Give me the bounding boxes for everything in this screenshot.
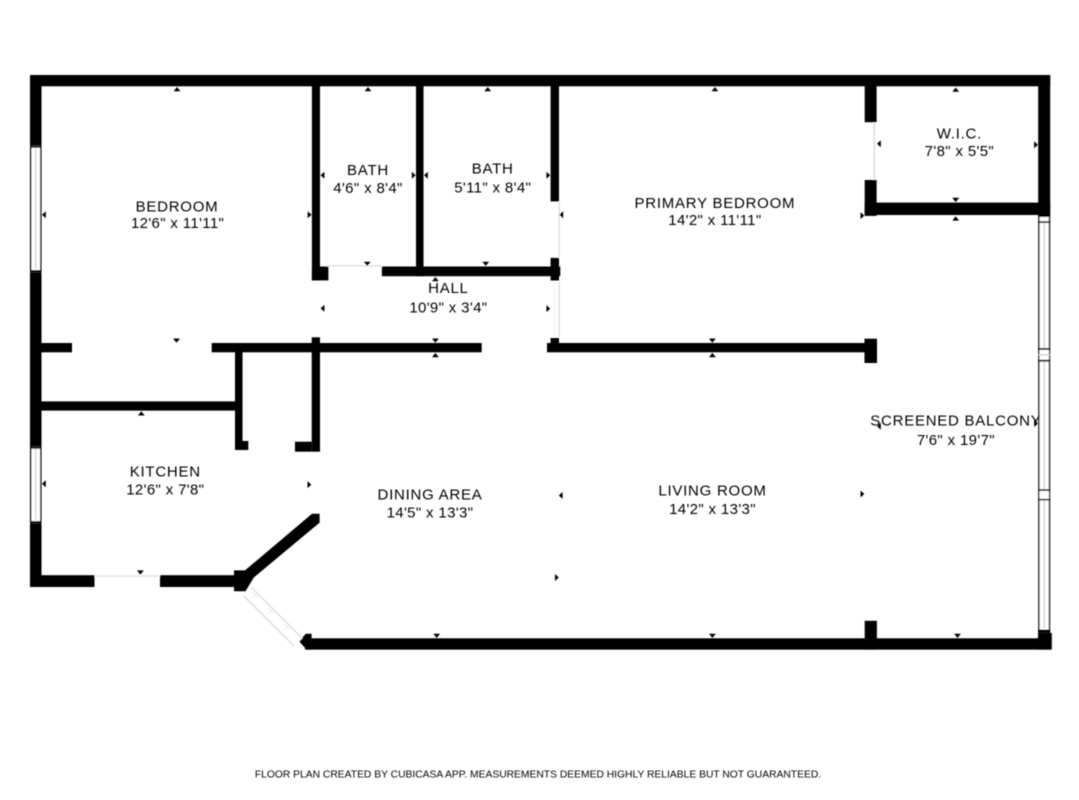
svg-text:12'6" x 11'11": 12'6" x 11'11" [131, 215, 224, 232]
svg-text:7'8" x 5'5": 7'8" x 5'5" [925, 143, 994, 160]
svg-text:FLOOR PLAN CREATED BY CUBICASA: FLOOR PLAN CREATED BY CUBICASA APP. MEAS… [255, 770, 821, 781]
svg-text:SCREENED BALCONY: SCREENED BALCONY [870, 413, 1041, 430]
svg-text:10'9" x 3'4": 10'9" x 3'4" [409, 299, 487, 316]
svg-text:14'5" x 13'3": 14'5" x 13'3" [387, 505, 474, 522]
svg-text:W.I.C.: W.I.C. [937, 125, 982, 142]
svg-text:7'6" x 19'7": 7'6" x 19'7" [917, 432, 995, 449]
svg-text:HALL: HALL [428, 280, 469, 297]
svg-text:BATH: BATH [347, 162, 389, 179]
svg-text:DINING AREA: DINING AREA [378, 486, 483, 503]
svg-text:4'6" x 8'4": 4'6" x 8'4" [333, 180, 402, 197]
svg-text:14'2" x 11'11": 14'2" x 11'11" [668, 212, 761, 229]
svg-text:5'11" x 8'4": 5'11" x 8'4" [454, 179, 531, 196]
svg-text:BATH: BATH [472, 161, 514, 178]
svg-text:14'2" x 13'3": 14'2" x 13'3" [669, 501, 756, 518]
svg-text:LIVING ROOM: LIVING ROOM [658, 482, 766, 499]
svg-text:12'6" x 7'8": 12'6" x 7'8" [126, 482, 204, 499]
svg-text:PRIMARY BEDROOM: PRIMARY BEDROOM [635, 195, 796, 212]
svg-text:KITCHEN: KITCHEN [130, 463, 201, 480]
svg-text:BEDROOM: BEDROOM [136, 198, 219, 215]
